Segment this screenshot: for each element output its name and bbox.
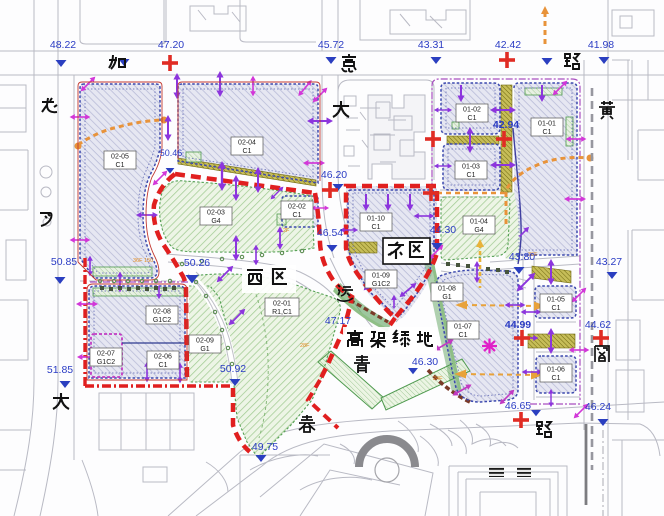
svg-text:01-04: 01-04	[470, 219, 488, 226]
svg-text:46.54: 46.54	[317, 227, 343, 239]
svg-text:G1: G1	[200, 346, 209, 353]
svg-text:C1: C1	[159, 362, 168, 369]
svg-text:02-09: 02-09	[196, 338, 214, 345]
svg-text:43.31: 43.31	[418, 39, 444, 51]
svg-text:47.20: 47.20	[158, 39, 184, 51]
svg-text:02-07: 02-07	[97, 351, 115, 358]
svg-text:44.62: 44.62	[585, 319, 611, 331]
svg-text:50.26: 50.26	[184, 257, 210, 269]
svg-text:50.92: 50.92	[220, 363, 246, 375]
svg-text:50.46: 50.46	[160, 148, 183, 158]
svg-text:C1: C1	[372, 224, 381, 231]
svg-text:02-04: 02-04	[238, 140, 256, 147]
svg-text:46.24: 46.24	[585, 401, 611, 413]
svg-text:46.30: 46.30	[412, 356, 438, 368]
svg-text:01-08: 01-08	[438, 286, 456, 293]
svg-text:48.22: 48.22	[50, 39, 76, 51]
svg-text:C1: C1	[468, 115, 477, 122]
svg-text:44.99: 44.99	[505, 319, 531, 331]
svg-text:02-01: 02-01	[273, 301, 291, 308]
svg-text:C1: C1	[459, 332, 468, 339]
svg-text:02-08: 02-08	[153, 309, 171, 316]
svg-text:G1C2: G1C2	[153, 317, 171, 324]
svg-text:2F: 2F	[283, 228, 290, 234]
svg-text:G1C2: G1C2	[97, 359, 115, 366]
svg-text:C1: C1	[467, 172, 476, 179]
svg-text:46.20: 46.20	[321, 169, 347, 181]
svg-text:01-03: 01-03	[462, 164, 480, 171]
svg-text:36F 150: 36F 150	[133, 258, 153, 264]
svg-text:46.65: 46.65	[505, 400, 531, 412]
svg-text:43.27: 43.27	[596, 256, 622, 268]
svg-text:01-05: 01-05	[547, 297, 565, 304]
svg-text:G1: G1	[442, 294, 451, 301]
svg-text:R1,C1: R1,C1	[272, 309, 292, 316]
svg-text:47.17: 47.17	[325, 315, 351, 327]
svg-text:01-09: 01-09	[372, 273, 390, 280]
svg-text:G4: G4	[211, 218, 220, 225]
svg-text:C1: C1	[543, 129, 552, 136]
svg-text:C1: C1	[552, 375, 561, 382]
svg-text:02-06: 02-06	[154, 354, 172, 361]
svg-text:01-01: 01-01	[538, 121, 556, 128]
svg-text:01-07: 01-07	[454, 324, 472, 331]
svg-text:02-03: 02-03	[207, 210, 225, 217]
svg-text:42.94: 42.94	[493, 119, 519, 131]
svg-text:01-10: 01-10	[367, 216, 385, 223]
svg-text:41.98: 41.98	[588, 39, 614, 51]
svg-text:45.72: 45.72	[318, 39, 344, 51]
svg-text:42.42: 42.42	[495, 39, 521, 51]
svg-text:G4: G4	[474, 227, 483, 234]
svg-text:50.85: 50.85	[51, 256, 77, 268]
svg-text:44.30: 44.30	[430, 224, 456, 236]
svg-text:01-02: 01-02	[463, 107, 481, 114]
svg-text:28F: 28F	[300, 343, 310, 349]
svg-text:C1: C1	[293, 212, 302, 219]
svg-text:01-06: 01-06	[547, 367, 565, 374]
svg-text:43.80: 43.80	[509, 251, 535, 263]
svg-text:C1: C1	[243, 148, 252, 155]
svg-text:C1: C1	[552, 305, 561, 312]
svg-text:02-05: 02-05	[111, 154, 129, 161]
svg-text:02-02: 02-02	[288, 204, 306, 211]
svg-text:C1: C1	[116, 162, 125, 169]
svg-text:49.75: 49.75	[252, 441, 278, 453]
svg-text:24F: 24F	[433, 376, 443, 382]
svg-text:G1C2: G1C2	[372, 281, 390, 288]
svg-text:51.85: 51.85	[47, 364, 73, 376]
